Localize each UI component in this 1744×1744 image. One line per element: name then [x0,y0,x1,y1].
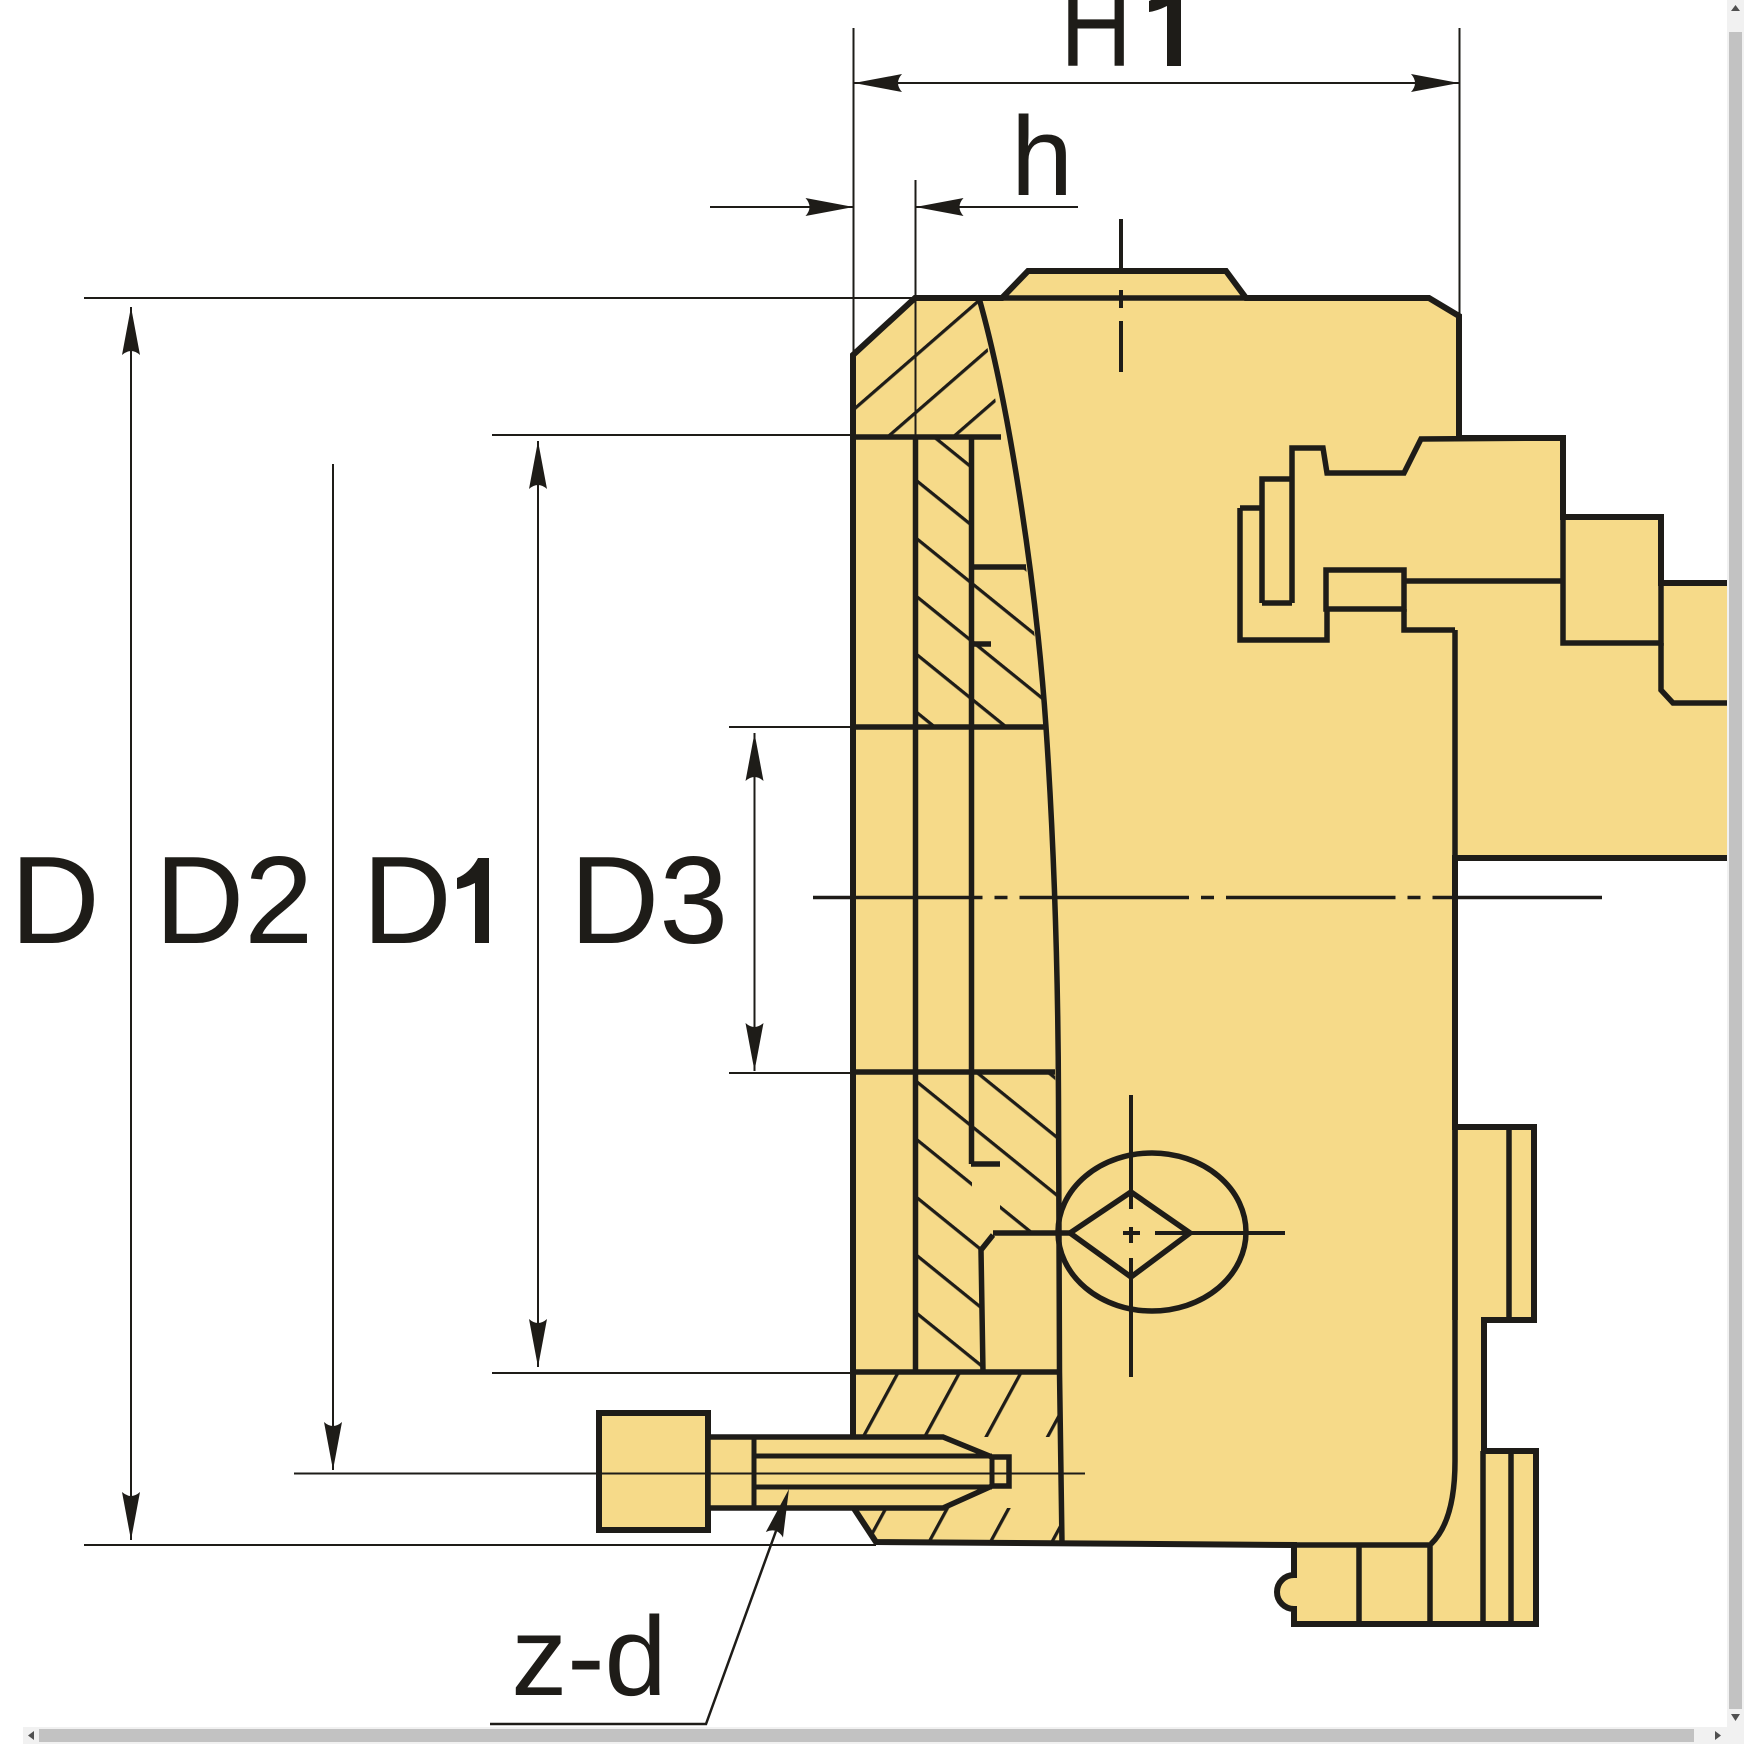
svg-text:D: D [10,832,100,970]
svg-text:z-d: z-d [511,1594,667,1719]
svg-text:D: D [362,832,452,970]
svg-text:H: H [1060,0,1132,92]
svg-text:D2: D2 [155,832,314,970]
svg-text:D3: D3 [570,832,729,970]
svg-text:h: h [1011,94,1073,219]
